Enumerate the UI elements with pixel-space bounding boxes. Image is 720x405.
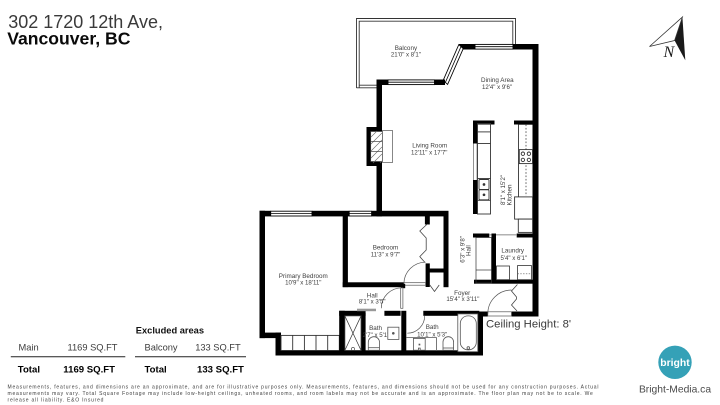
svg-text:Laundry: Laundry: [501, 248, 525, 255]
svg-text:Main: Main: [19, 343, 39, 353]
svg-text:Hall: Hall: [466, 245, 473, 256]
svg-text:release all liability. E&O Ins: release all liability. E&O Insured: [8, 398, 105, 404]
svg-text:133 SQ.FT: 133 SQ.FT: [197, 365, 244, 376]
svg-text:measurements may vary. Total S: measurements may vary. Total Square Foot…: [8, 391, 594, 397]
svg-text:12'11" x 17'7": 12'11" x 17'7": [411, 150, 447, 157]
svg-text:Measurements, features, and di: Measurements, features, and dimensions a…: [8, 385, 600, 391]
svg-text:Bath: Bath: [426, 324, 439, 331]
svg-text:6'3" x 9'8": 6'3" x 9'8": [460, 236, 467, 263]
svg-text:21'0" x 8'1": 21'0" x 8'1": [391, 51, 421, 58]
svg-text:bright: bright: [660, 358, 690, 369]
svg-text:Balcony: Balcony: [145, 343, 178, 353]
svg-text:133 SQ.FT: 133 SQ.FT: [195, 343, 241, 353]
svg-text:11'3" x 9'7": 11'3" x 9'7": [371, 251, 401, 258]
svg-text:1169 SQ.FT: 1169 SQ.FT: [63, 365, 115, 376]
svg-text:Total: Total: [18, 365, 40, 376]
svg-text:N: N: [663, 44, 676, 61]
svg-text:Excluded areas: Excluded areas: [136, 326, 204, 336]
svg-text:Bright-Media.ca: Bright-Media.ca: [639, 385, 711, 396]
svg-text:8'1" x 15'2": 8'1" x 15'2": [500, 175, 507, 205]
svg-text:15'4" x 3'11": 15'4" x 3'11": [446, 296, 479, 303]
svg-text:1169 SQ.FT: 1169 SQ.FT: [68, 343, 118, 353]
svg-text:5'4" x 6'1": 5'4" x 6'1": [500, 255, 527, 262]
svg-text:Ceiling Height: 8': Ceiling Height: 8': [486, 319, 571, 331]
svg-text:Kitchen: Kitchen: [506, 184, 513, 206]
svg-text:Vancouver, BC: Vancouver, BC: [7, 28, 131, 48]
svg-text:12'4" x 9'6": 12'4" x 9'6": [482, 84, 512, 91]
svg-text:10'9" x 18'11": 10'9" x 18'11": [285, 280, 321, 287]
svg-text:Total: Total: [145, 365, 167, 376]
svg-text:Bath: Bath: [369, 325, 382, 332]
